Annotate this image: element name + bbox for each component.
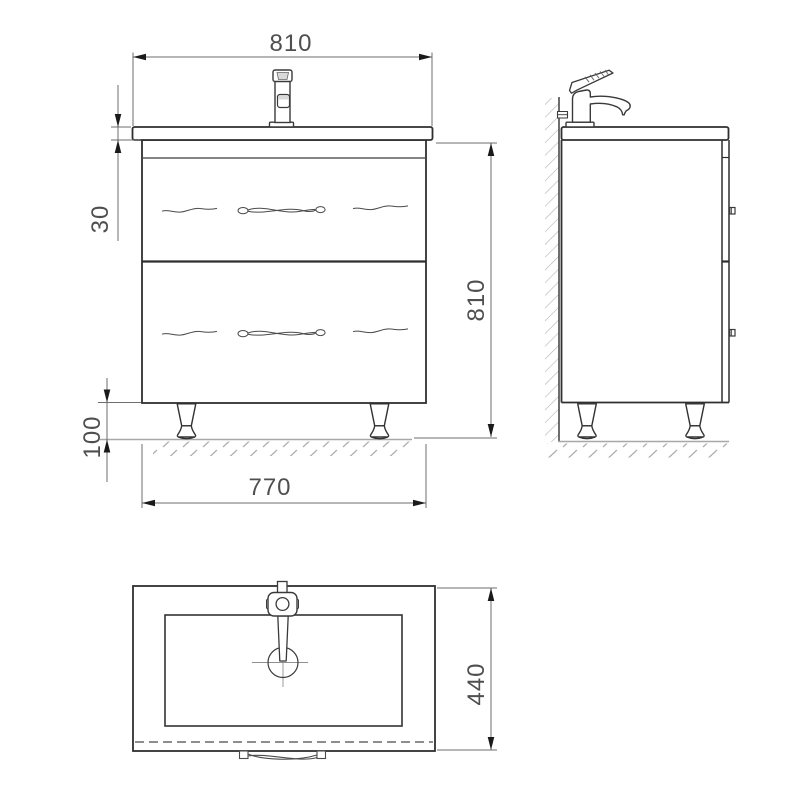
dimension-440-label: 440	[463, 662, 490, 705]
faucet-spout-plan	[278, 616, 288, 661]
faucet-side	[558, 70, 631, 127]
countertop-front	[133, 127, 433, 140]
faucet-front	[270, 70, 294, 127]
faucet-lever	[570, 70, 614, 93]
technical-drawing-canvas: 810 30 810	[0, 0, 799, 800]
dimension-30-label: 30	[87, 205, 114, 234]
dimension-810-height-label: 810	[463, 278, 490, 321]
vanity-orthographic-drawing: 810 30 810	[0, 0, 799, 800]
top-view: 440	[133, 582, 497, 760]
front-ground-hatch	[153, 442, 410, 457]
dimension-100-label: 100	[79, 415, 106, 458]
side-view	[545, 70, 735, 458]
cabinet-body-side	[562, 140, 730, 403]
dimension-440-depth: 440	[437, 588, 497, 750]
drawer-knobs-side	[730, 208, 736, 337]
countertop-side	[562, 127, 729, 140]
dimension-810-width-label: 810	[269, 30, 312, 57]
dimension-100-legs: 100	[79, 378, 141, 482]
front-legs	[177, 404, 389, 439]
dimension-770-label: 770	[248, 474, 291, 501]
side-floor-hatch	[547, 444, 728, 458]
wall-hatch	[545, 98, 559, 442]
cabinet-body-front	[142, 140, 426, 403]
handle-plan	[240, 751, 326, 759]
side-legs	[578, 404, 705, 439]
front-view: 810 30 810	[79, 30, 497, 508]
